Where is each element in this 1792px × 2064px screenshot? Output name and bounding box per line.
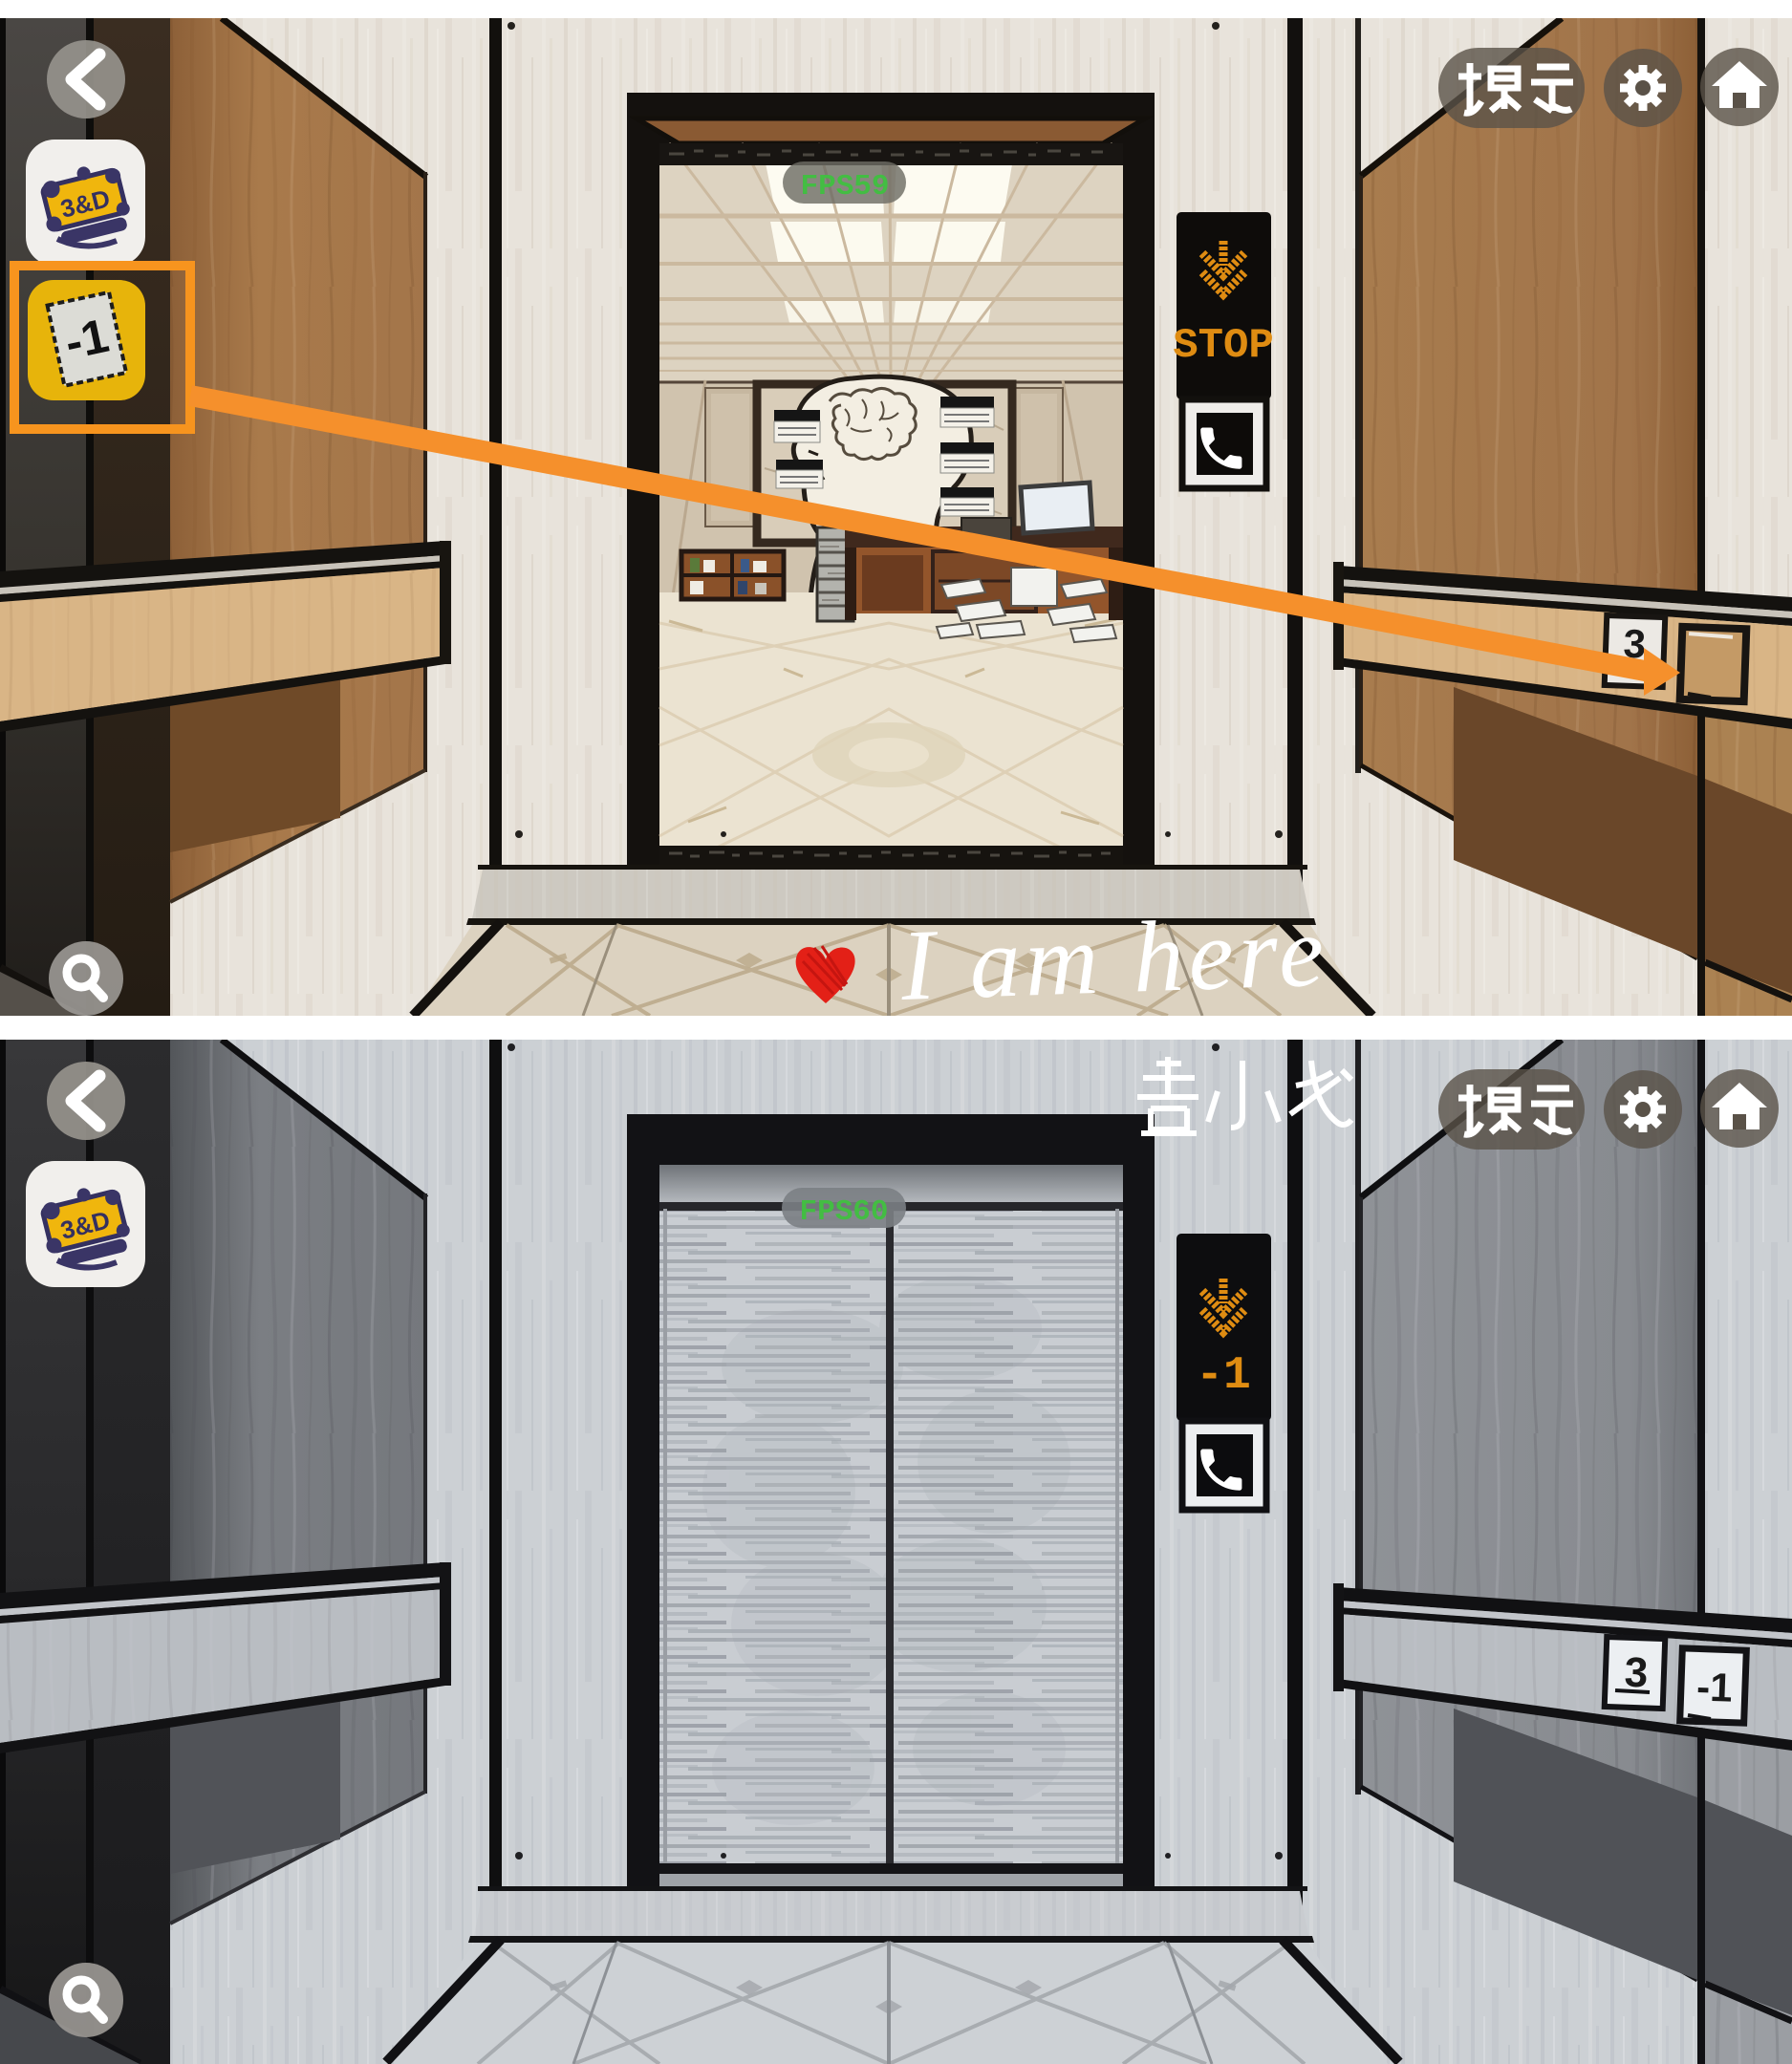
svg-text:FPS60: FPS60 — [799, 1195, 888, 1229]
svg-text:-1: -1 — [1196, 1350, 1251, 1402]
svg-text:I am here: I am here — [898, 894, 1330, 1021]
svg-text:3: 3 — [1624, 1649, 1649, 1697]
svg-text:FPS59: FPS59 — [800, 170, 889, 204]
svg-text:-1: -1 — [1695, 1664, 1733, 1709]
svg-text:STOP: STOP — [1173, 322, 1274, 370]
